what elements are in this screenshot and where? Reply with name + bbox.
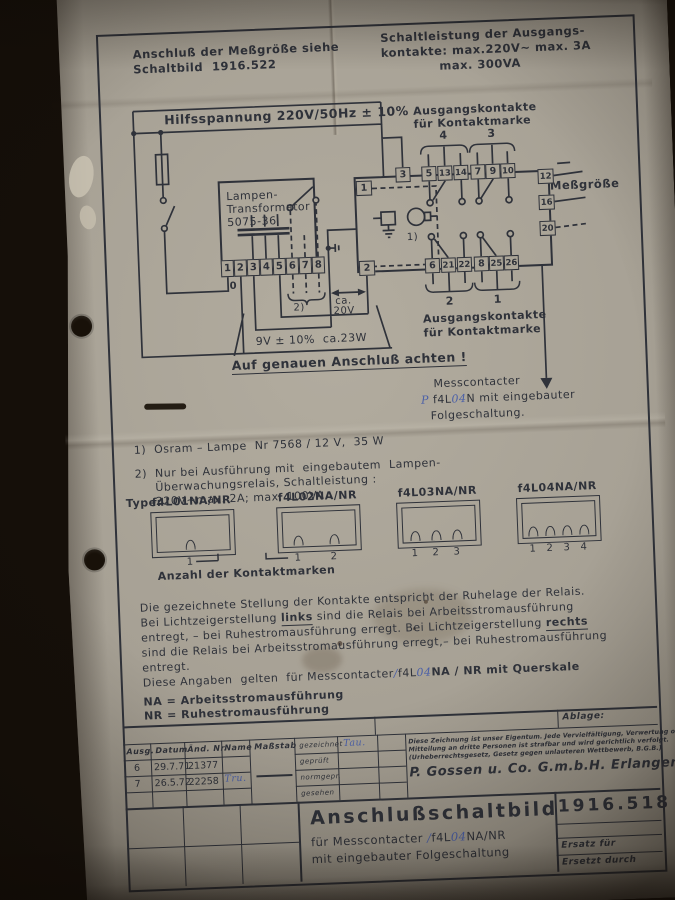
col-header-aendnr: Änd. Nr.	[187, 743, 227, 755]
sign-label-normgepr: normgepr.	[300, 772, 341, 782]
trafo-terminal-3: 3	[247, 259, 261, 276]
relay-terminal-8: 8	[474, 256, 490, 272]
transformer-core-bars	[237, 228, 289, 235]
rev-row-1-aendnr: 21377	[188, 760, 219, 773]
relay-terminal-6: 6	[425, 258, 441, 274]
paragraph-line-5: entregt.	[142, 660, 190, 676]
mark-number: 2	[328, 551, 340, 564]
mark-number: 2	[430, 547, 442, 560]
mark-number: 3	[561, 542, 573, 555]
messgroesse-label: Meßgröße	[550, 176, 620, 193]
handwritten-04: 04	[451, 829, 467, 844]
rev-row-2-ausg: 7	[134, 779, 141, 791]
relay-terminal-12: 12	[537, 169, 554, 185]
mark-number: 1	[527, 543, 539, 556]
ca20v-label-2: 20V	[333, 305, 355, 318]
lamp-bulb-symbol	[407, 208, 425, 226]
ablage-label: Ablage:	[562, 711, 605, 724]
rev-row-2-datum: 26.5.72	[154, 777, 191, 790]
contact-mark-2: 2	[441, 294, 459, 308]
arrowhead-right	[358, 288, 366, 295]
mark-number: 1	[292, 552, 304, 565]
mark-number: 3	[451, 546, 463, 559]
underlined-rechts: rechts	[546, 615, 589, 632]
paper-tilt-wrapper: Anschluß der Meßgröße siehe Schaltbild 1…	[0, 0, 675, 900]
col-header-datum: Datum	[155, 745, 188, 756]
trafo-terminal-7: 7	[299, 257, 313, 274]
signature-gezeichnet: Tau.	[343, 737, 366, 750]
relay-terminal-16: 16	[538, 194, 555, 210]
transformer-name-3: 5075-36	[227, 214, 277, 230]
wire-segments	[133, 94, 592, 393]
handwritten-04: 04	[416, 666, 431, 680]
relay-terminal-26: 26	[504, 255, 520, 271]
handwritten-p: P	[421, 393, 433, 406]
junction-dot	[326, 246, 331, 251]
relay-terminal-5: 5	[421, 166, 437, 182]
rev-row-1-datum: 29.7.71	[154, 761, 191, 774]
handwritten-04: 04	[451, 392, 466, 406]
sign-label-geprueft: geprüft	[300, 757, 330, 767]
relay-terminal-10: 10	[500, 163, 516, 179]
relay-terminal-22: 22	[457, 257, 473, 273]
relay-terminal-2: 2	[359, 260, 376, 276]
relay-terminal-20: 20	[539, 220, 556, 236]
pointer-arrowhead	[540, 378, 552, 389]
relay-terminal-13: 13	[437, 165, 453, 181]
trafo-terminal-4: 4	[260, 258, 274, 275]
mark-number: 1	[184, 557, 196, 570]
drawing-number: 1916.518	[557, 793, 658, 818]
col-header-ausg: Ausg.	[126, 746, 154, 757]
junction-dot	[131, 131, 136, 136]
col-header-massstab: Maßstab	[254, 741, 297, 753]
mark-number: 2	[544, 543, 556, 556]
rev-row-1-ausg: 6	[134, 763, 141, 775]
lamp-footnote-mark: 1)	[407, 232, 419, 245]
relay-terminal-21: 21	[441, 257, 457, 273]
trafo-terminal-1: 1	[221, 260, 235, 277]
contact-mark-4: 4	[435, 128, 453, 142]
relay-terminal-7: 7	[470, 164, 486, 180]
trafo-terminal-5: 5	[273, 258, 287, 275]
ersatz-fuer-label: Ersatz für	[561, 839, 616, 852]
sign-label-gezeichnet: gezeichnet	[299, 740, 343, 750]
junction-dot	[158, 130, 163, 135]
footnote2-mark: 2)	[293, 302, 305, 315]
sign-label-gesehen: gesehen	[301, 788, 335, 798]
lamp-base	[424, 212, 430, 220]
relay-terminal-25: 25	[489, 255, 505, 271]
zero-terminal-label: 0	[229, 281, 237, 294]
relay-terminal-9: 9	[485, 164, 501, 180]
relay-lamp-resistor	[381, 212, 395, 226]
relay-terminal-14: 14	[453, 165, 469, 181]
mark-number: 4	[578, 541, 590, 554]
trafo-terminal-6: 6	[286, 257, 300, 274]
trafo-terminal-8: 8	[312, 256, 326, 273]
rev-row-2-aendnr: 22258	[188, 776, 219, 789]
relay-terminal-1: 1	[356, 180, 373, 196]
trafo-terminal-2: 2	[234, 259, 248, 276]
rev-row-2-name: Tru.	[224, 773, 246, 786]
relay-terminal-3: 3	[395, 167, 411, 183]
contact-mark-3: 3	[483, 127, 501, 141]
underlined-links: links	[281, 610, 313, 626]
col-header-name: Name	[224, 742, 252, 753]
mark-number: 1	[409, 548, 421, 561]
photographed-drawing: Anschluß der Meßgröße siehe Schaltbild 1…	[0, 0, 675, 900]
contact-mark-1: 1	[489, 292, 507, 306]
